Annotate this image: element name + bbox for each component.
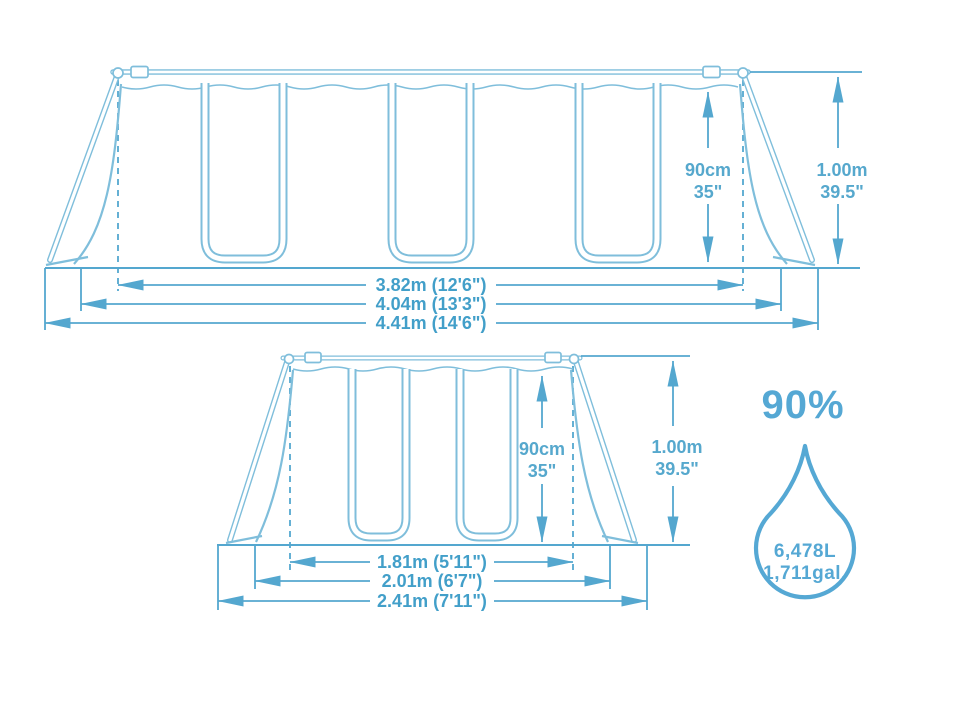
outer-height-dimension: 1.00m 39.5" bbox=[581, 356, 703, 542]
water-line bbox=[122, 85, 738, 89]
width-label-1: 1.81m (5'11") bbox=[377, 552, 487, 572]
pool-dimensions-diagram: 3.82m (12'6") 4.04m (13'3") 4.41m (14'6"… bbox=[0, 0, 960, 720]
u-frame-2 bbox=[460, 369, 514, 537]
capacity-indicator: 90% 6,478L 1,711gal. bbox=[756, 383, 854, 597]
capacity-liters: 6,478L bbox=[774, 541, 836, 562]
length-label-1: 3.82m (12'6") bbox=[376, 275, 487, 295]
u-frame-3 bbox=[579, 83, 657, 259]
u-frame-supports bbox=[205, 83, 657, 259]
inner-height-imperial: 35" bbox=[528, 461, 557, 481]
outer-height-imperial: 39.5" bbox=[655, 459, 699, 479]
u-frame-supports bbox=[352, 369, 514, 537]
capacity-gallons: 1,711gal. bbox=[763, 563, 847, 584]
outer-height-imperial: 39.5" bbox=[820, 182, 864, 202]
rail-sleeve-left bbox=[131, 67, 148, 78]
width-dimension-2: 2.01m (6'7") bbox=[255, 571, 610, 591]
width-label-3: 2.41m (7'11") bbox=[377, 591, 487, 611]
inner-height-metric: 90cm bbox=[685, 160, 731, 180]
width-label-2: 2.01m (6'7") bbox=[382, 571, 483, 591]
rail-sleeve-right bbox=[545, 353, 561, 363]
length-dimension-3: 4.41m (14'6") bbox=[45, 313, 818, 333]
rail-sleeve-left bbox=[305, 353, 321, 363]
corner-joint-right bbox=[738, 68, 748, 78]
inner-height-dimension: 90cm 35" bbox=[685, 92, 731, 262]
diagram-svg: 3.82m (12'6") 4.04m (13'3") 4.41m (14'6"… bbox=[0, 0, 960, 720]
corner-joint-right bbox=[570, 355, 579, 364]
fill-percent-label: 90% bbox=[761, 383, 844, 427]
outer-height-metric: 1.00m bbox=[651, 437, 702, 457]
length-dimension-2: 4.04m (13'3") bbox=[81, 294, 781, 314]
inner-height-dimension: 90cm 35" bbox=[519, 376, 565, 542]
u-frame-2 bbox=[392, 83, 470, 259]
width-dimension-1: 1.81m (5'11") bbox=[290, 552, 573, 572]
water-line bbox=[293, 367, 573, 371]
pool-side-view: 3.82m (12'6") 4.04m (13'3") 4.41m (14'6"… bbox=[45, 67, 868, 334]
corner-joint-left bbox=[285, 355, 294, 364]
length-label-2: 4.04m (13'3") bbox=[376, 294, 487, 314]
u-frame-1 bbox=[205, 83, 283, 259]
outer-height-metric: 1.00m bbox=[816, 160, 867, 180]
width-dimension-3: 2.41m (7'11") bbox=[218, 591, 647, 611]
u-frame-1 bbox=[352, 369, 406, 537]
rail-sleeve-right bbox=[703, 67, 720, 78]
pool-end-view: 1.81m (5'11") 2.01m (6'7") 2.41m (7'11")… bbox=[217, 353, 703, 612]
corner-joint-left bbox=[113, 68, 123, 78]
inner-height-imperial: 35" bbox=[694, 182, 723, 202]
inner-height-metric: 90cm bbox=[519, 439, 565, 459]
length-dimension-1: 3.82m (12'6") bbox=[118, 275, 743, 295]
length-label-3: 4.41m (14'6") bbox=[376, 313, 487, 333]
